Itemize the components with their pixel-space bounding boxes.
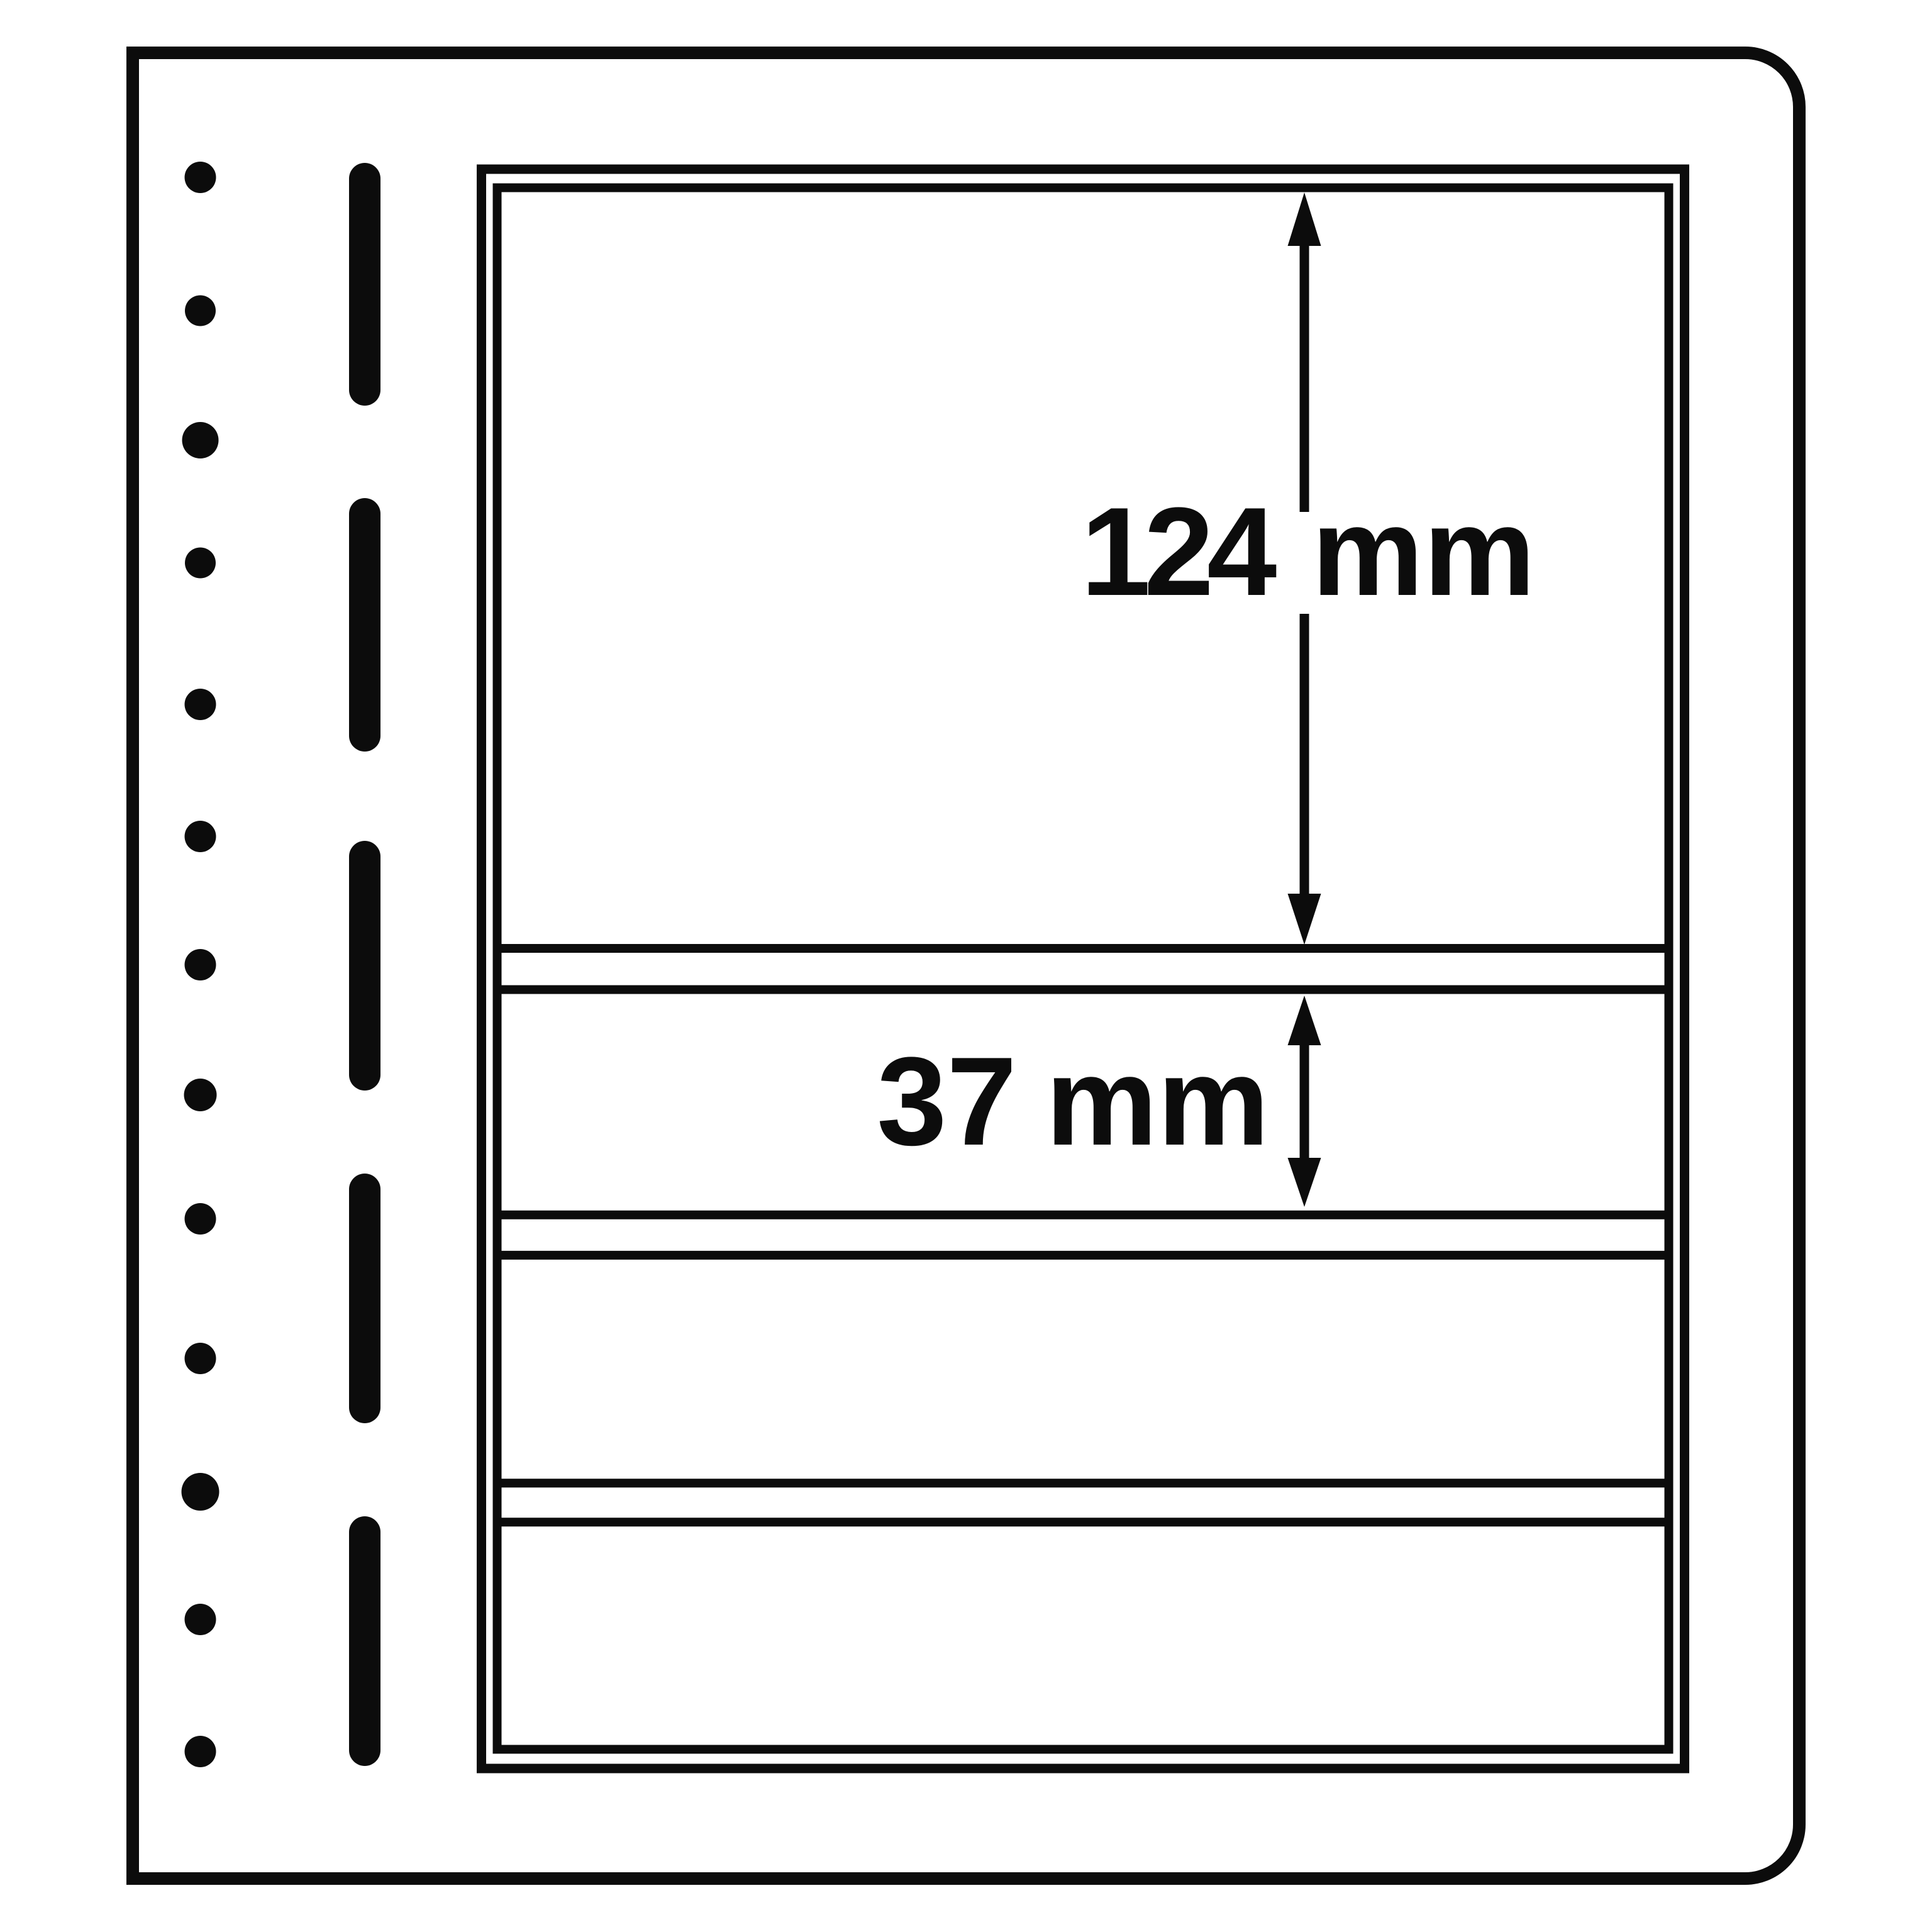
svg-text:mm: mm [1312,482,1536,622]
svg-text:mm: mm [1046,1031,1270,1172]
svg-text:124: 124 [1081,482,1277,622]
svg-text:37: 37 [877,1031,1016,1172]
